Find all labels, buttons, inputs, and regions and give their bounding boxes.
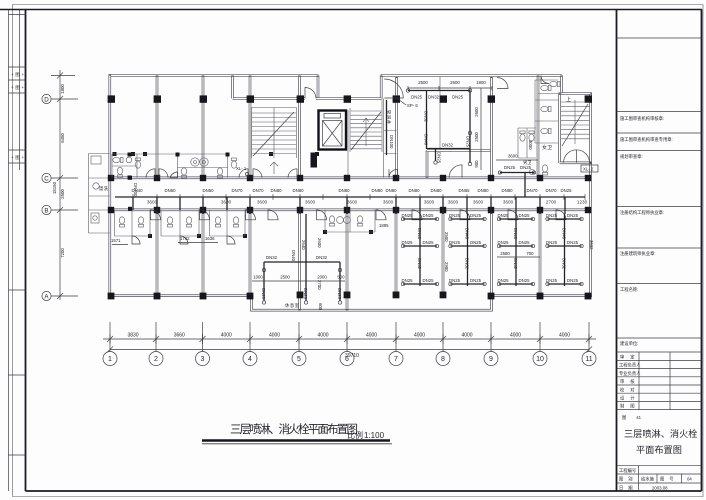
svg-text:1895: 1895 <box>379 223 389 228</box>
svg-text:A: A <box>44 293 49 300</box>
svg-text:给水施: 给水施 <box>641 476 655 483</box>
svg-text:DN25: DN25 <box>423 278 435 283</box>
svg-text:上: 上 <box>566 96 571 103</box>
svg-text:7: 7 <box>394 356 398 363</box>
svg-text:DN40: DN40 <box>465 228 470 240</box>
svg-text:DN25: DN25 <box>449 240 461 245</box>
svg-text:6: 6 <box>345 356 349 363</box>
svg-text:DN80: DN80 <box>293 188 305 193</box>
svg-text:600: 600 <box>318 303 323 311</box>
svg-text:3632: 3632 <box>589 240 594 250</box>
svg-text:5: 5 <box>297 356 301 363</box>
svg-text:1702: 1702 <box>180 236 190 241</box>
svg-text:7200: 7200 <box>60 248 65 258</box>
svg-text:DN25: DN25 <box>519 240 531 245</box>
svg-text:9: 9 <box>489 356 493 363</box>
svg-text:DN25: DN25 <box>567 213 579 218</box>
svg-text:1:100: 1:100 <box>364 431 385 440</box>
svg-text:DN32: DN32 <box>428 95 440 100</box>
svg-text:2580: 2580 <box>500 251 510 256</box>
svg-text:DN25: DN25 <box>437 152 442 164</box>
svg-text:图41: 图41 <box>622 415 642 421</box>
svg-text:DN40: DN40 <box>417 228 422 240</box>
svg-text:DN25: DN25 <box>261 288 266 300</box>
svg-text:500: 500 <box>337 275 345 280</box>
svg-text:2500: 2500 <box>474 132 479 142</box>
svg-text:DN25: DN25 <box>452 95 464 100</box>
svg-text:DN25: DN25 <box>504 165 516 170</box>
svg-text:2500: 2500 <box>280 275 290 280</box>
svg-text:1636: 1636 <box>205 236 215 241</box>
svg-text:2600: 2600 <box>474 107 479 117</box>
svg-text:盥洗: 盥洗 <box>99 185 109 192</box>
svg-text:DN50: DN50 <box>203 188 215 193</box>
svg-text:DN32: DN32 <box>562 258 567 270</box>
svg-text:DN32: DN32 <box>513 258 518 270</box>
svg-text:DN32: DN32 <box>442 143 454 148</box>
svg-text:制图: 制图 <box>620 403 635 410</box>
svg-text:DN80: DN80 <box>271 188 283 193</box>
svg-text:DN25: DN25 <box>567 278 579 283</box>
svg-text:3600: 3600 <box>347 200 358 205</box>
svg-text:DN100: DN100 <box>133 183 138 197</box>
svg-text:专业负责人: 专业负责人 <box>619 370 641 377</box>
svg-text:DN32: DN32 <box>417 258 422 270</box>
svg-text:DN25: DN25 <box>449 278 461 283</box>
svg-text:D: D <box>44 96 49 103</box>
svg-text:图别: 图别 <box>619 476 633 483</box>
svg-text:XL- 1: XL- 1 <box>236 166 247 171</box>
svg-text:DN25: DN25 <box>449 213 461 218</box>
svg-text:8: 8 <box>441 356 445 363</box>
svg-text:DN40: DN40 <box>513 228 518 240</box>
svg-text:休息室: 休息室 <box>285 302 300 309</box>
svg-text:DN25: DN25 <box>546 240 558 245</box>
svg-text:女卫: 女卫 <box>542 144 552 151</box>
svg-text:3660: 3660 <box>174 333 185 339</box>
svg-text:1571: 1571 <box>111 238 121 243</box>
svg-text:比例: 比例 <box>347 430 363 440</box>
svg-text:DN80: DN80 <box>502 188 514 193</box>
svg-text:DN32: DN32 <box>465 258 470 270</box>
svg-text:3830: 3830 <box>127 333 138 339</box>
svg-text:DN25: DN25 <box>402 213 414 218</box>
svg-text:B: B <box>44 207 48 214</box>
svg-text:DN70: DN70 <box>527 188 539 193</box>
svg-text:XL- 2: XL- 2 <box>583 167 594 172</box>
svg-text:DN25: DN25 <box>498 240 510 245</box>
svg-text:1800: 1800 <box>476 80 486 85</box>
svg-text:DN40: DN40 <box>424 134 429 146</box>
svg-text:4000: 4000 <box>317 333 328 339</box>
svg-text:DN65: DN65 <box>459 188 471 193</box>
svg-text:审核: 审核 <box>620 378 635 385</box>
svg-text:DN25: DN25 <box>561 188 573 193</box>
svg-text:DN32: DN32 <box>424 111 429 123</box>
svg-text:DN25: DN25 <box>498 278 510 283</box>
svg-text:2: 2 <box>154 356 158 363</box>
svg-text:3600: 3600 <box>424 200 435 205</box>
svg-text:DN80: DN80 <box>339 188 351 193</box>
svg-text:2640: 2640 <box>301 240 306 250</box>
svg-text:工程负责人: 工程负责人 <box>619 362 641 369</box>
svg-text:工程名称:: 工程名称: <box>620 286 638 293</box>
svg-text:3600: 3600 <box>383 200 394 205</box>
svg-text:DN25: DN25 <box>498 213 510 218</box>
svg-text:2500: 2500 <box>444 232 449 242</box>
svg-text:DN100: DN100 <box>389 135 394 149</box>
svg-text:+图+: +图+ <box>11 85 24 91</box>
svg-text:2000: 2000 <box>317 275 327 280</box>
svg-text:3600: 3600 <box>503 200 514 205</box>
svg-text:DN25: DN25 <box>411 95 423 100</box>
svg-text:DN25: DN25 <box>466 136 471 148</box>
svg-text:10: 10 <box>536 356 544 363</box>
svg-text:1800: 1800 <box>60 84 65 94</box>
svg-text:3600: 3600 <box>473 200 484 205</box>
svg-text:DN25: DN25 <box>402 278 414 283</box>
svg-text:04: 04 <box>687 477 692 482</box>
svg-text:1000: 1000 <box>253 275 263 280</box>
svg-text:3600: 3600 <box>508 154 518 159</box>
svg-text:2500: 2500 <box>418 80 428 85</box>
svg-text:DN25: DN25 <box>470 278 482 283</box>
svg-text:SP- 6: SP- 6 <box>407 103 418 108</box>
svg-text:建设单位:: 建设单位: <box>620 340 638 347</box>
svg-text:DN70: DN70 <box>232 188 244 193</box>
svg-text:3600: 3600 <box>221 200 232 205</box>
svg-text:DN32: DN32 <box>266 255 278 260</box>
svg-text:4000: 4000 <box>461 333 472 339</box>
svg-text:900: 900 <box>474 160 479 168</box>
svg-text:施工图审查机构审查专用章:: 施工图审查机构审查专用章: <box>620 136 673 143</box>
svg-text:DN25: DN25 <box>423 240 435 245</box>
svg-text:2003.08: 2003.08 <box>652 486 668 491</box>
svg-text:DN25: DN25 <box>567 240 579 245</box>
svg-text:DN25: DN25 <box>470 213 482 218</box>
svg-text:3600: 3600 <box>257 200 268 205</box>
svg-text:3600: 3600 <box>305 200 316 205</box>
svg-text:18150: 18150 <box>52 181 57 194</box>
svg-text:DN80: DN80 <box>431 188 443 193</box>
svg-text:DN25: DN25 <box>546 213 558 218</box>
svg-text:DN70: DN70 <box>546 188 558 193</box>
svg-text:2600: 2600 <box>317 238 322 248</box>
svg-text:+图+: +图+ <box>11 72 24 78</box>
svg-text:DN25: DN25 <box>520 165 532 170</box>
svg-text:4000: 4000 <box>366 333 377 339</box>
svg-text:11: 11 <box>585 356 592 363</box>
svg-text:2980: 2980 <box>444 262 449 272</box>
svg-text:1230: 1230 <box>577 200 588 205</box>
svg-text:DN80: DN80 <box>478 188 490 193</box>
svg-text:1: 1 <box>108 356 112 363</box>
svg-text:DN25: DN25 <box>546 278 558 283</box>
svg-text:DN40: DN40 <box>562 228 567 240</box>
svg-text:2600: 2600 <box>450 80 460 85</box>
svg-text:3600: 3600 <box>448 200 459 205</box>
svg-text:DN80: DN80 <box>372 188 384 193</box>
svg-text:DN25: DN25 <box>519 278 531 283</box>
svg-text:DN40: DN40 <box>291 250 296 262</box>
svg-text:设计: 设计 <box>620 395 635 402</box>
svg-text:700: 700 <box>526 251 534 256</box>
svg-text:6450: 6450 <box>60 133 65 143</box>
svg-text:审定: 审定 <box>620 354 635 361</box>
svg-text:三层喷淋、消火栓平面布置图: 三层喷淋、消火栓平面布置图 <box>230 422 358 436</box>
svg-text:4000: 4000 <box>510 333 521 339</box>
svg-text:DN25: DN25 <box>303 288 308 300</box>
svg-text:施工图审查机构审核章:: 施工图审查机构审核章: <box>620 115 664 122</box>
svg-text:3: 3 <box>201 356 205 363</box>
svg-text:4: 4 <box>248 356 252 363</box>
svg-text:4000: 4000 <box>269 333 280 339</box>
svg-text:DN32: DN32 <box>316 255 328 260</box>
svg-text:图号: 图号 <box>660 477 674 483</box>
svg-text:校对: 校对 <box>620 386 635 393</box>
svg-text:注册建筑师执业章:: 注册建筑师执业章: <box>620 250 656 257</box>
svg-text:2700: 2700 <box>317 280 322 290</box>
svg-text:三层喷淋、消火栓: 三层喷淋、消火栓 <box>624 428 698 439</box>
svg-text:DN25: DN25 <box>337 288 342 300</box>
svg-text:DN80: DN80 <box>409 188 421 193</box>
svg-text:平面布置图: 平面布置图 <box>636 444 682 455</box>
svg-text:DN80: DN80 <box>386 188 398 193</box>
svg-text:3600: 3600 <box>147 200 158 205</box>
svg-text:DN70: DN70 <box>253 188 265 193</box>
svg-text:4000: 4000 <box>221 333 232 339</box>
svg-text:3000: 3000 <box>528 140 533 150</box>
svg-text:DN25: DN25 <box>402 240 414 245</box>
svg-text:DN25: DN25 <box>519 213 531 218</box>
svg-text:C: C <box>44 175 49 182</box>
svg-text:2500: 2500 <box>60 189 65 199</box>
svg-text:注册结构工程师执业章:: 注册结构工程师执业章: <box>620 209 664 216</box>
svg-text:DN25: DN25 <box>470 240 482 245</box>
svg-text:+图+: +图+ <box>11 155 24 161</box>
svg-text:DN50: DN50 <box>165 188 177 193</box>
svg-text:4000: 4000 <box>414 333 425 339</box>
svg-text:4000: 4000 <box>559 333 570 339</box>
svg-text:规划审查章:: 规划审查章: <box>620 153 643 160</box>
svg-text:工程编号: 工程编号 <box>619 467 636 474</box>
svg-text:2700: 2700 <box>546 200 557 205</box>
svg-text:DN25: DN25 <box>423 213 435 218</box>
